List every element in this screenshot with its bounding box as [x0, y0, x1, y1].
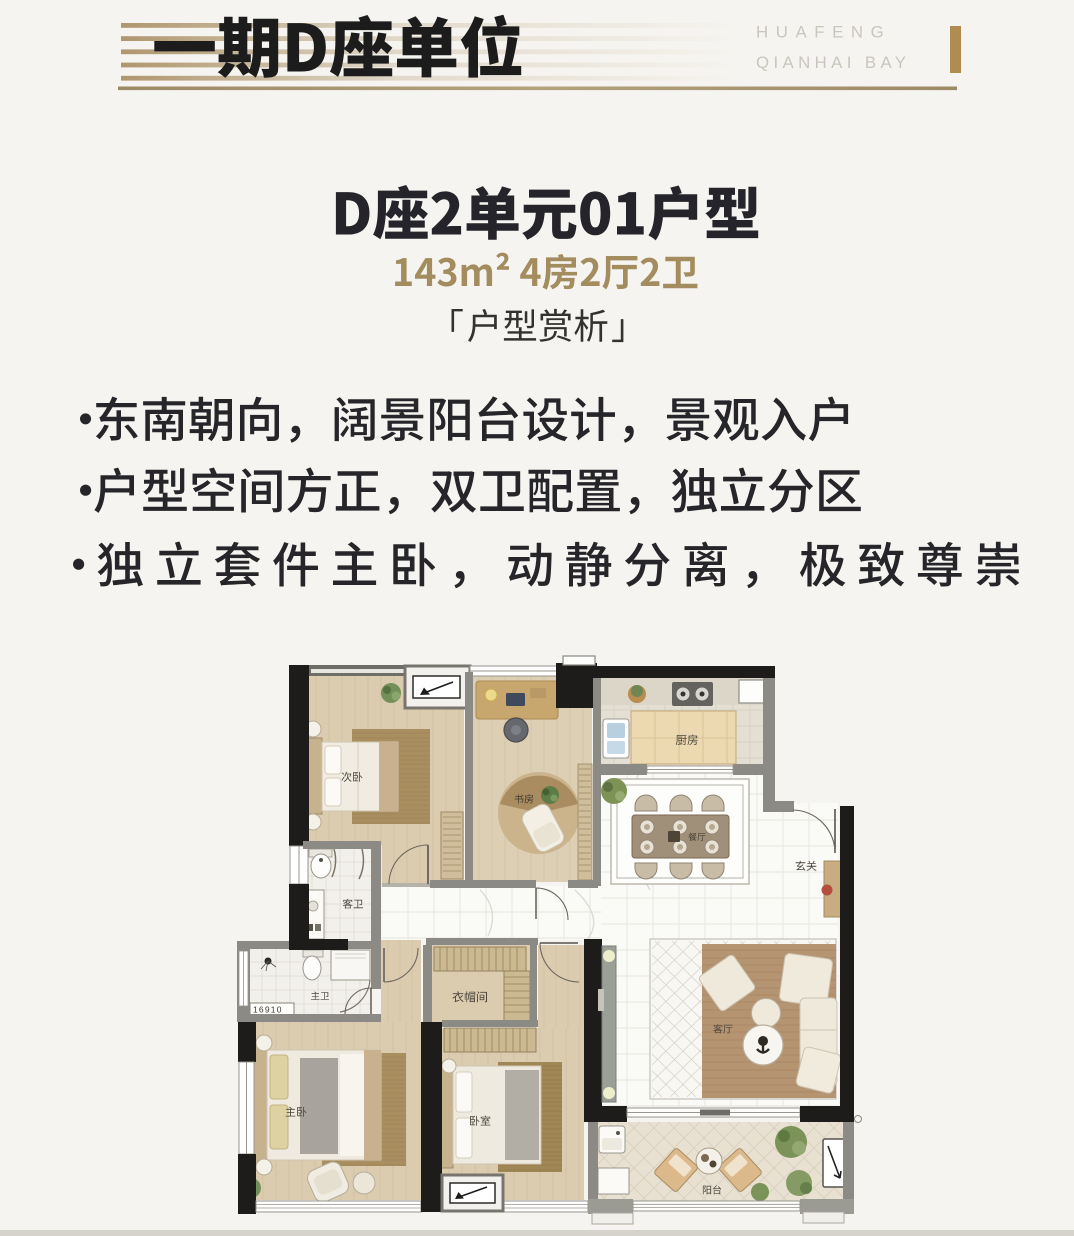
svg-text:QIANHAI BAY: QIANHAI BAY — [756, 53, 910, 72]
svg-text:HUAFENG: HUAFENG — [756, 23, 891, 42]
svg-text:16910: 16910 — [253, 1005, 283, 1015]
